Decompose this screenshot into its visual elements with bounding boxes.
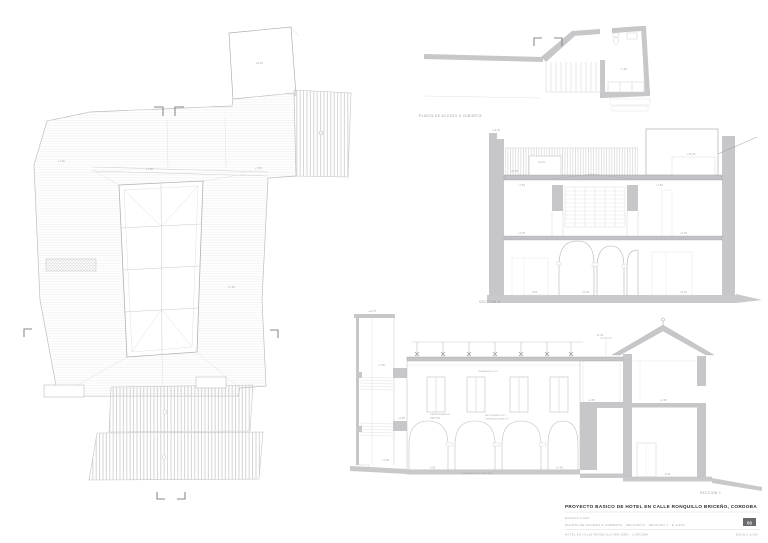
sa-level: 0,00 bbox=[532, 291, 538, 294]
section-1-house bbox=[612, 318, 714, 477]
roof-plan-terrace-upper bbox=[109, 385, 253, 432]
plan-level-label: +8,15 bbox=[256, 62, 263, 65]
architectural-sheet-svg: +7,30 +7,65 +7,65 +8,15 +7,65 bbox=[0, 0, 768, 543]
plan-level-label: +7,65 bbox=[228, 286, 235, 289]
s1-level: +0,45 bbox=[556, 467, 563, 470]
s1-deck-label: TERRAZA DE SOL bbox=[478, 370, 499, 373]
sa-level: +0,30 bbox=[680, 291, 687, 294]
roof-access-plan-caption: PLANTA DE ACCESO A CUBIERTA bbox=[419, 114, 482, 118]
plan-level-label: +7,30 bbox=[58, 160, 65, 163]
section-a-caption: SECCION A bbox=[479, 300, 501, 304]
sa-level: +9,15 bbox=[538, 161, 545, 164]
s1-level: +4,05 bbox=[588, 399, 595, 402]
sa-level: +7,56 bbox=[518, 184, 525, 187]
titleblock-footer-right: ESCALA 1/100 bbox=[736, 533, 758, 537]
roof-plan-terrace-lower bbox=[89, 432, 263, 480]
sa-level: +3,78 bbox=[680, 232, 687, 235]
s1-floor-note: LINEA DE MURO ORIGINAL bbox=[462, 472, 493, 475]
section-a-patio-lattice bbox=[565, 187, 625, 227]
sa-level: +11,70 bbox=[492, 129, 501, 132]
sa-level: +7,56 bbox=[656, 184, 663, 187]
s1-level: +4,05 bbox=[398, 417, 405, 420]
section-1-drawing: +11,70 +7,65 +4,05 +1,35 11,15 TERRAZA D… bbox=[350, 310, 762, 491]
sa-level: +10,45 bbox=[687, 153, 696, 156]
section-1-caption: SECCION 1 bbox=[700, 491, 721, 495]
section-a-drawing: +11,70 +9,15 +8,70 +10,45 +3,78 +3,78 0,… bbox=[479, 129, 762, 304]
sheet-number: 03 bbox=[747, 520, 752, 525]
s1-level: +3,60 bbox=[660, 399, 667, 402]
s1-note: RECUPERACION Y bbox=[485, 414, 506, 417]
roof-plan: +7,30 +7,65 +7,65 +8,15 +7,65 bbox=[24, 27, 351, 499]
sa-level: +3,78 bbox=[518, 232, 525, 235]
s1-dim: 11,15 bbox=[597, 334, 604, 337]
section-a-arches bbox=[556, 241, 638, 295]
s1-note: CARPINTERIA DE bbox=[430, 413, 450, 416]
s1-note: MADERA bbox=[430, 417, 440, 420]
sa-level: +8,70 bbox=[511, 170, 518, 173]
drawing-sheet: +7,30 +7,65 +7,65 +8,15 +7,65 bbox=[0, 0, 768, 543]
plan-level-label: +7,65 bbox=[146, 168, 153, 171]
project-title: PROYECTO BASICO DE HOTEL EN CALLE RONQUI… bbox=[565, 503, 757, 509]
titleblock-contents-row: PLANTA DE ACCESO A CUBIERTA · SECCION A … bbox=[565, 523, 685, 527]
s1-level: +7,65 bbox=[378, 364, 385, 367]
s1-level: +1,35 bbox=[382, 459, 389, 462]
access-level-label: +7,65 bbox=[620, 68, 627, 71]
title-block: SECCION 1 PROYECTO BASICO DE HOTEL EN CA… bbox=[565, 491, 760, 537]
s1-note: LIMPIEZA DE ARCOS bbox=[485, 418, 509, 421]
titleblock-footer-left: HOTEL EN CALLE RONQUILLO BRICEÑO · CORDO… bbox=[565, 532, 649, 537]
titleblock-scale-row: ESCALA 1/100 bbox=[565, 516, 589, 520]
section-1-pergola bbox=[407, 338, 623, 361]
s1-level: +11,70 bbox=[368, 310, 377, 313]
s1-level: 0,00 bbox=[430, 467, 436, 470]
s1-level: -0,35 bbox=[664, 473, 671, 476]
roof-access-plan: +7,65 PLANTA DE ACCESO A CUBIERTA bbox=[419, 26, 650, 118]
section-a-caseton bbox=[646, 129, 718, 175]
plan-level-label: +7,65 bbox=[255, 167, 262, 170]
roof-plan-chimney-block bbox=[46, 259, 96, 271]
roof-finial bbox=[661, 318, 664, 321]
roof-plan-skylight bbox=[119, 181, 203, 357]
sa-level: +0,15 bbox=[582, 291, 589, 294]
roof-access-stairs bbox=[546, 62, 601, 92]
